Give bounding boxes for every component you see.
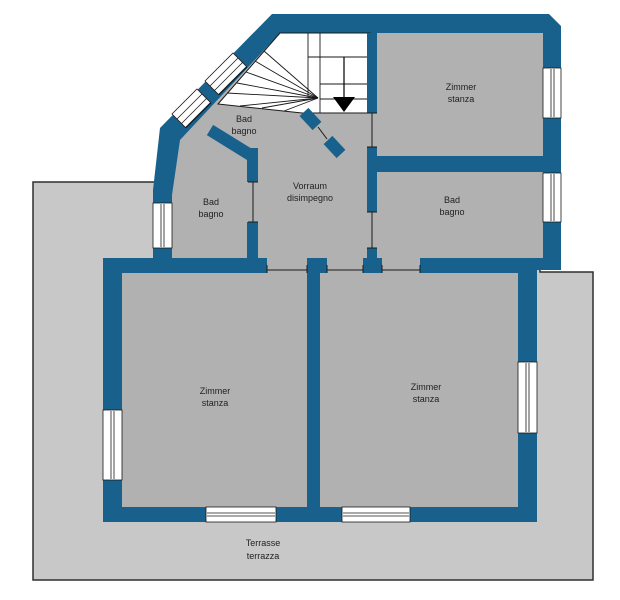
label-bad-right-de: Bad: [444, 195, 460, 205]
window-right-bad: [543, 173, 561, 222]
wall-vorraum-bad-upper: [367, 172, 377, 212]
window-right-top: [543, 68, 561, 118]
wall-stair-east-upper: [367, 33, 377, 113]
label-bad-upper-de: Bad: [236, 114, 252, 124]
label-vorraum-it: disimpegno: [287, 193, 333, 203]
window-bottom-left: [206, 507, 276, 522]
label-bad-left-it: bagno: [198, 209, 223, 219]
label-bad-left-de: Bad: [203, 197, 219, 207]
label-zimmer-bl-de: Zimmer: [200, 386, 231, 396]
window-left-bottom: [103, 410, 122, 480]
label-zimmer-top-de: Zimmer: [446, 82, 477, 92]
label-bad-upper-it: bagno: [231, 126, 256, 136]
label-zimmer-bl-it: stanza: [202, 398, 229, 408]
wall-stair-east-lower: [367, 147, 377, 156]
label-vorraum-de: Vorraum: [293, 181, 327, 191]
label-terrace-de: Terrasse: [246, 538, 281, 548]
wall-vorraum-bad-lower: [367, 248, 377, 258]
wall-zimmer-bad: [367, 156, 543, 172]
label-terrace-it: terrazza: [247, 551, 280, 561]
window-bottom-right: [342, 507, 410, 522]
wall-south-seg2: [307, 258, 327, 273]
wall-bad-left-east-lower: [247, 222, 258, 258]
label-zimmer-top-it: stanza: [448, 94, 475, 104]
label-bad-right-it: bagno: [439, 207, 464, 217]
wall-south-seg3: [363, 258, 382, 273]
floor-plan-drawing: Bad bagno Bad bagno Vorraum disimpegno Z…: [0, 0, 620, 600]
window-left-bad: [153, 203, 172, 248]
label-zimmer-br-it: stanza: [413, 394, 440, 404]
window-right-bottom: [518, 362, 537, 433]
wall-south-seg4: [420, 258, 518, 273]
label-zimmer-br-de: Zimmer: [411, 382, 442, 392]
wall-south-seg1: [155, 258, 267, 273]
wall-between-bedrooms: [307, 273, 320, 507]
floor-plan: Bad bagno Bad bagno Vorraum disimpegno Z…: [0, 0, 620, 600]
